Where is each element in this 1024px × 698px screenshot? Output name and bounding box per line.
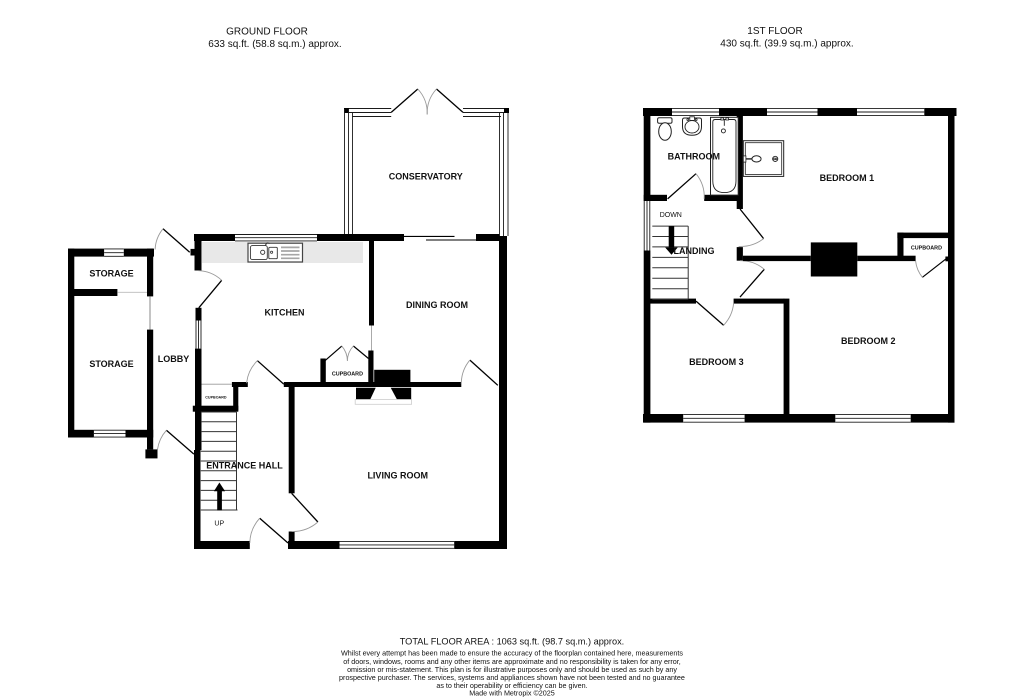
- svg-text:BEDROOM 3: BEDROOM 3: [689, 357, 744, 367]
- svg-text:BATHROOM: BATHROOM: [668, 151, 720, 161]
- svg-text:ENTRANCE HALL: ENTRANCE HALL: [206, 460, 283, 470]
- svg-text:KITCHEN: KITCHEN: [265, 308, 305, 318]
- svg-text:CUPBOARD: CUPBOARD: [205, 395, 227, 399]
- svg-text:LANDING: LANDING: [674, 246, 715, 256]
- svg-text:STORAGE: STORAGE: [89, 359, 133, 369]
- svg-text:UP: UP: [214, 521, 224, 528]
- svg-text:CUPBOARD: CUPBOARD: [911, 245, 942, 251]
- svg-text:STORAGE: STORAGE: [89, 268, 133, 278]
- svg-text:1ST FLOOR: 1ST FLOOR: [747, 26, 802, 37]
- svg-text:LOBBY: LOBBY: [158, 354, 190, 364]
- svg-text:Made with Metropix ©2025: Made with Metropix ©2025: [469, 688, 555, 697]
- svg-text:DINING ROOM: DINING ROOM: [406, 300, 468, 310]
- svg-text:DOWN: DOWN: [660, 212, 682, 219]
- svg-text:430 sq.ft. (39.9 sq.m.) approx: 430 sq.ft. (39.9 sq.m.) approx.: [720, 39, 853, 50]
- svg-text:633 sq.ft. (58.8 sq.m.) approx: 633 sq.ft. (58.8 sq.m.) approx.: [208, 39, 341, 50]
- svg-text:LIVING ROOM: LIVING ROOM: [367, 470, 428, 480]
- svg-text:BEDROOM 2: BEDROOM 2: [841, 336, 896, 346]
- svg-text:GROUND FLOOR: GROUND FLOOR: [226, 27, 308, 38]
- svg-text:TOTAL FLOOR AREA : 1063 sq.ft.: TOTAL FLOOR AREA : 1063 sq.ft. (98.7 sq.…: [400, 636, 625, 646]
- svg-text:CONSERVATORY: CONSERVATORY: [389, 172, 463, 182]
- svg-text:CUPBOARD: CUPBOARD: [332, 371, 363, 377]
- svg-text:BEDROOM 1: BEDROOM 1: [820, 173, 875, 183]
